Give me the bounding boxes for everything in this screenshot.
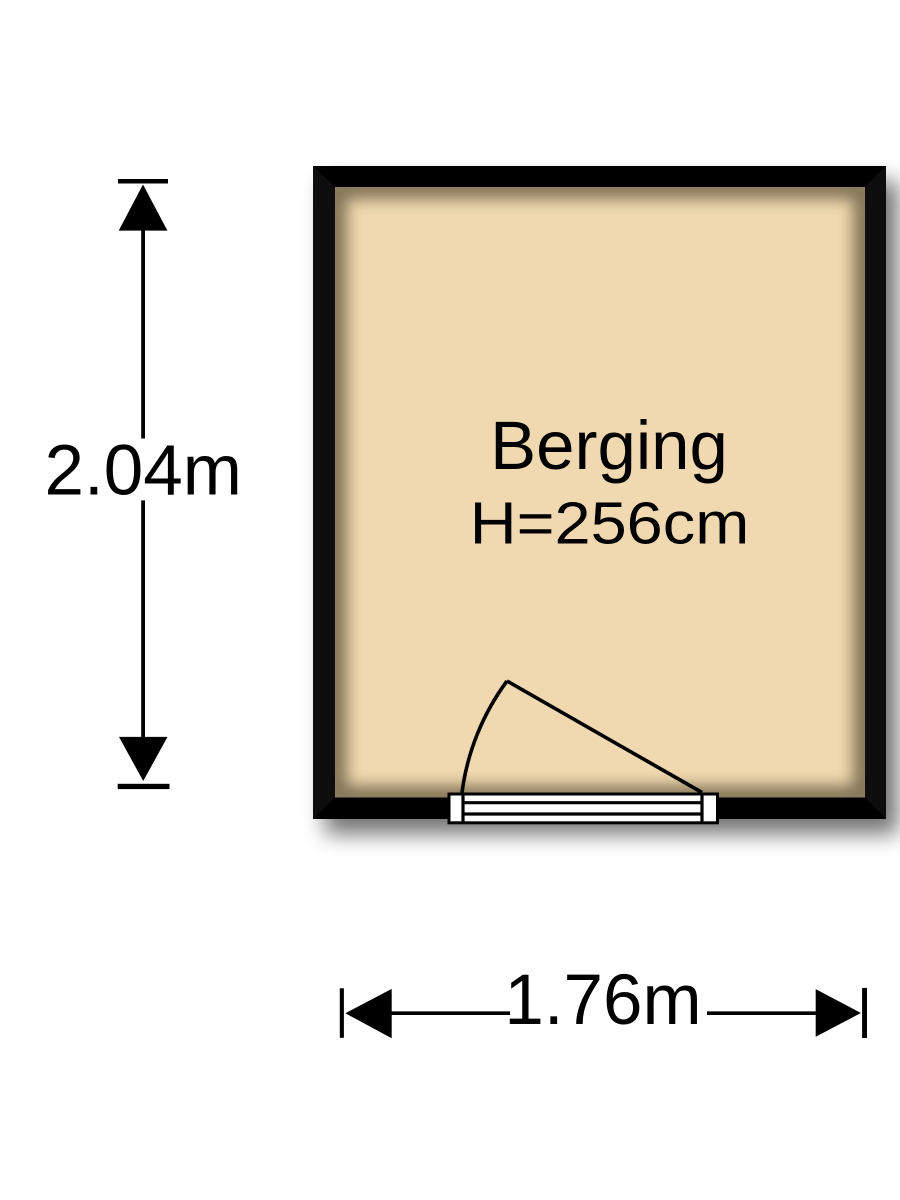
svg-text:H=256cm: H=256cm [470, 491, 750, 557]
svg-text:Berging: Berging [490, 407, 728, 484]
svg-text:1.76m: 1.76m [504, 961, 701, 1040]
svg-text:2.04m: 2.04m [45, 432, 242, 511]
